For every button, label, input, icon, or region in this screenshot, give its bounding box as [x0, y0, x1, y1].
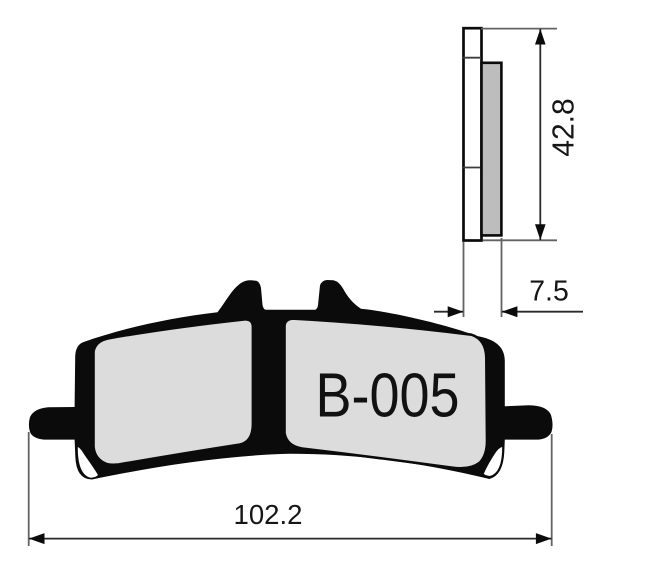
svg-text:7.5: 7.5 — [529, 276, 569, 308]
svg-text:B-005: B-005 — [316, 362, 460, 431]
svg-text:42.8: 42.8 — [547, 98, 581, 157]
svg-text:102.2: 102.2 — [234, 499, 303, 530]
